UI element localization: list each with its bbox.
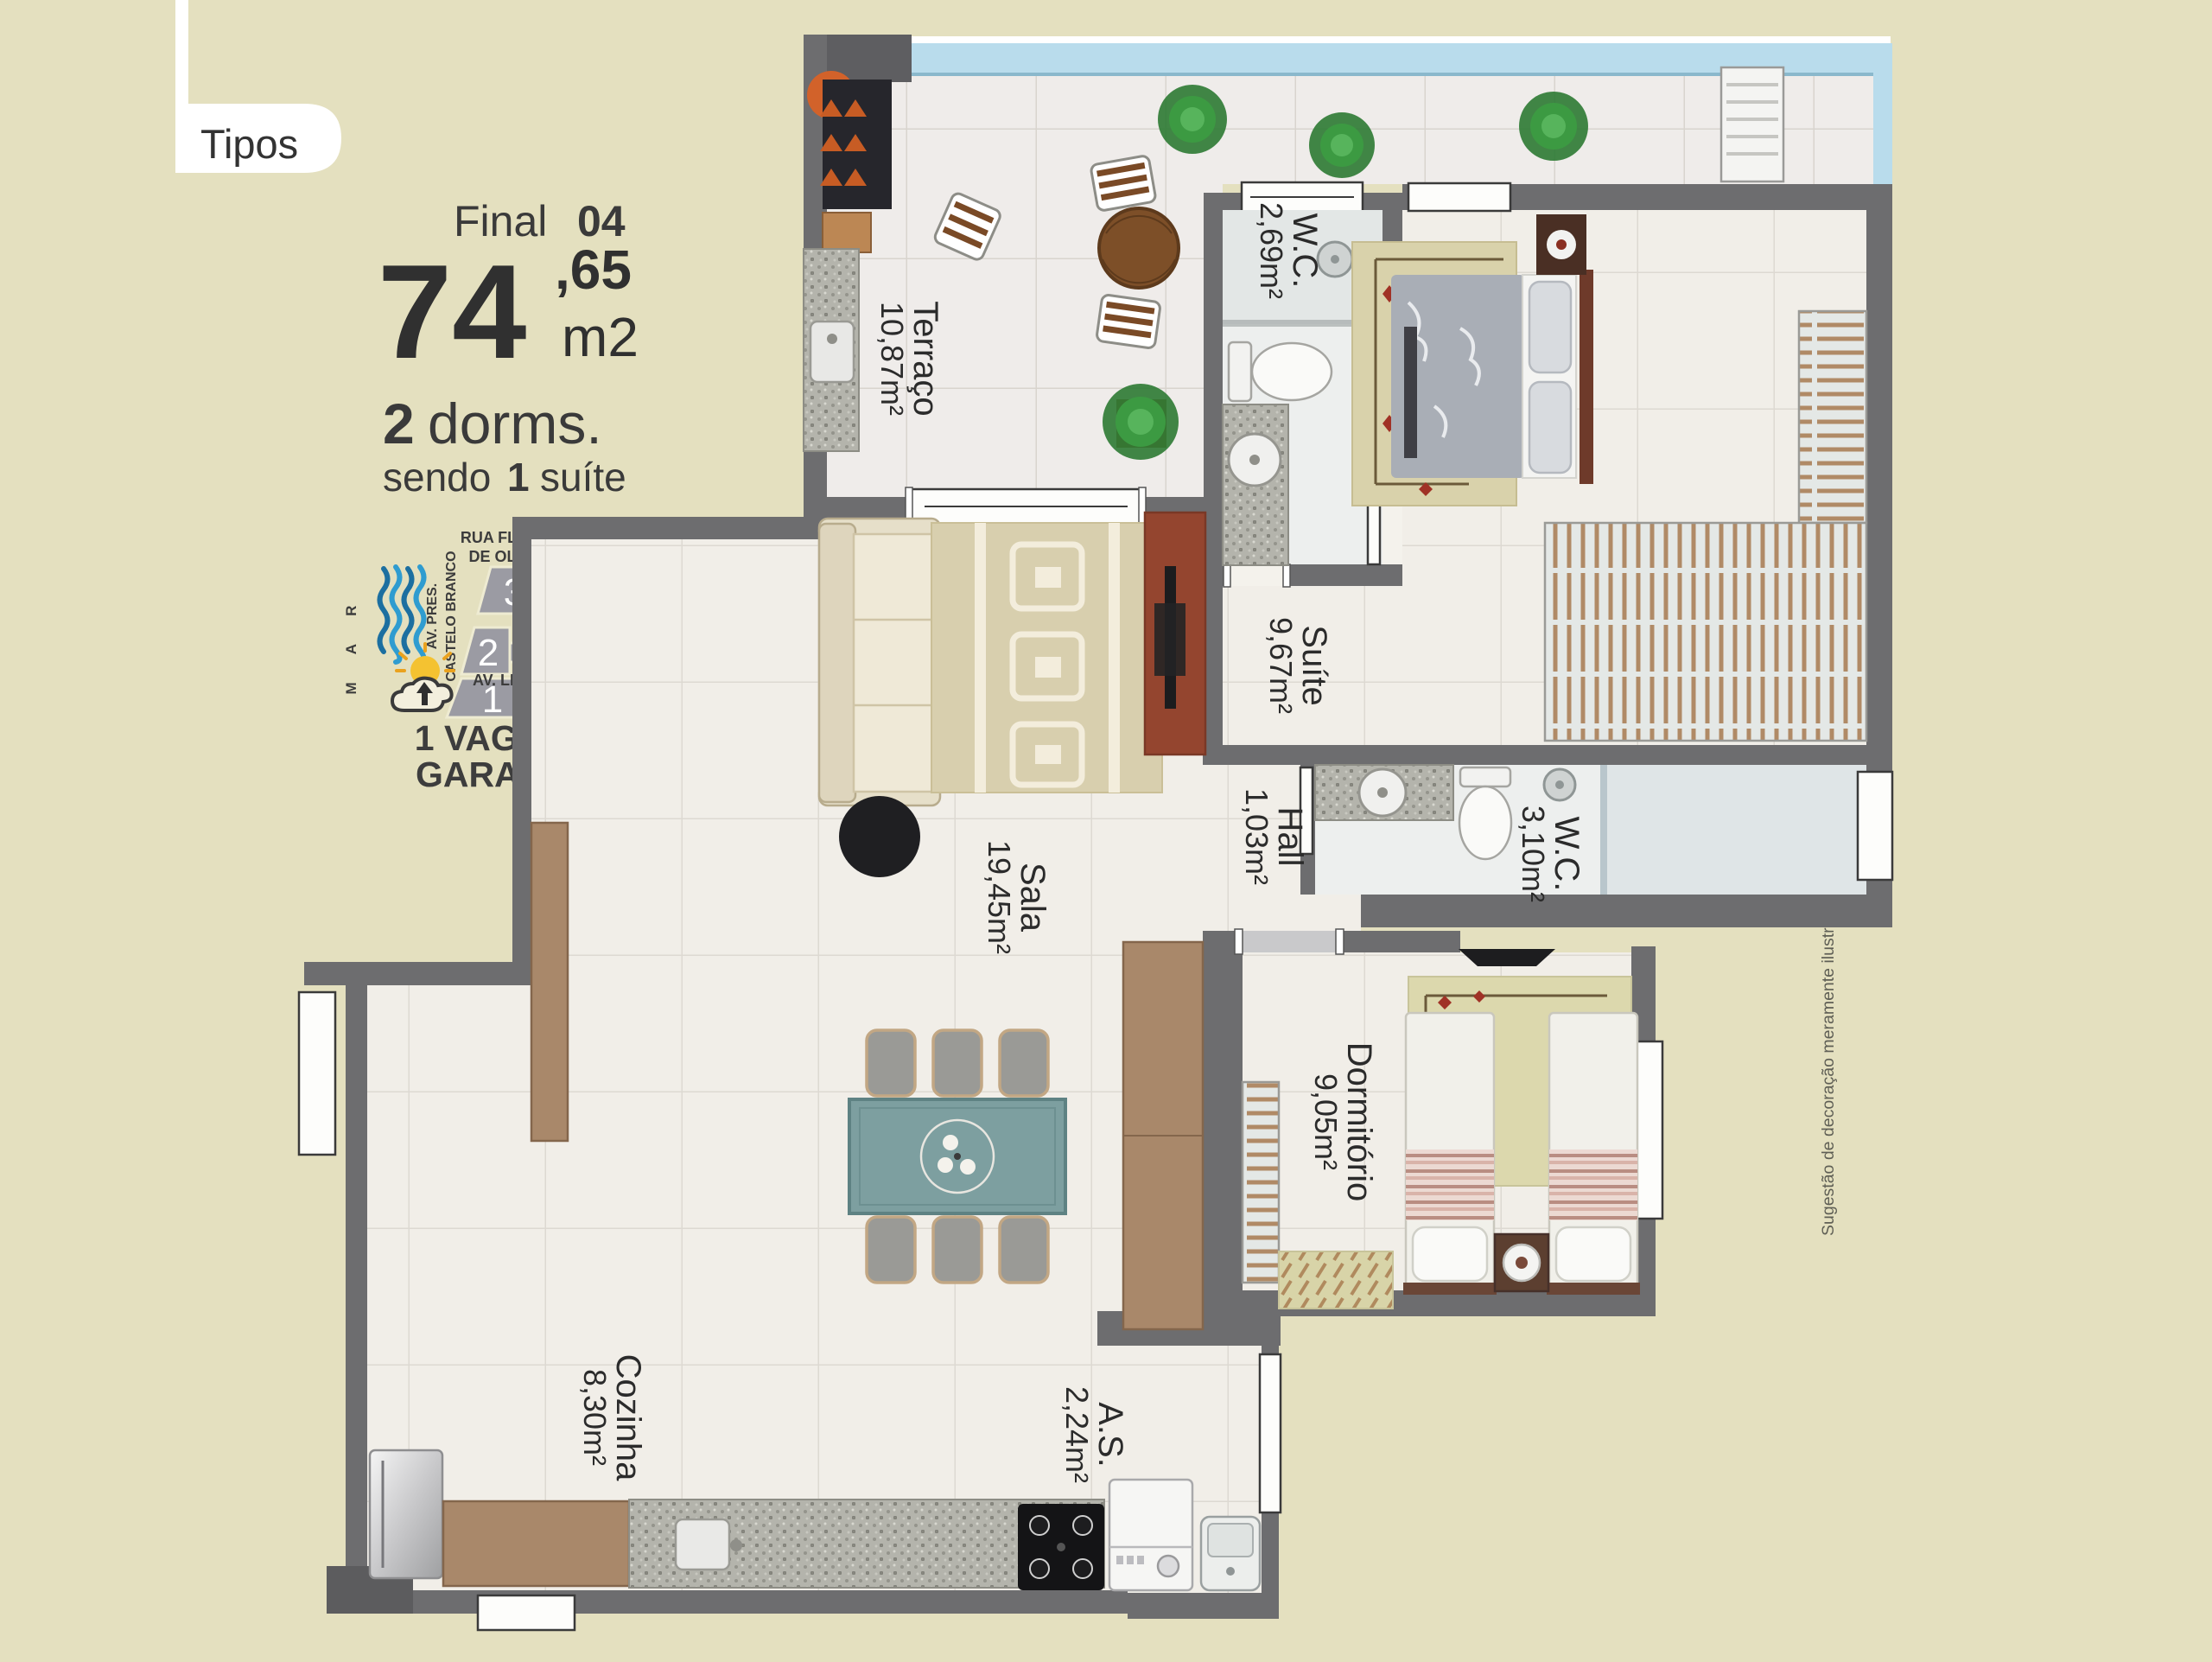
window: [478, 1595, 575, 1630]
dining-set: [849, 1030, 1065, 1283]
wall: [346, 977, 367, 1612]
svg-text:9,05m²: 9,05m²: [1308, 1073, 1344, 1170]
side-table: [823, 213, 871, 252]
ac-unit: [1721, 67, 1783, 181]
svg-text:2,24m²: 2,24m²: [1059, 1386, 1095, 1483]
laundry-tank-icon: [1201, 1517, 1260, 1590]
svg-text:A.S.: A.S.: [1091, 1402, 1129, 1468]
cooktop-icon: [1018, 1504, 1104, 1590]
wall: [1262, 1512, 1279, 1595]
svg-text:Suíte: Suíte: [1295, 625, 1333, 705]
toilet-tank: [1229, 342, 1251, 401]
door-jamb: [1336, 929, 1344, 954]
dorm-wardrobe: [1243, 1082, 1279, 1283]
sala-rug: [931, 523, 1162, 793]
tab-label: Tipos: [200, 121, 298, 167]
svg-text:8,30m²: 8,30m²: [577, 1369, 613, 1466]
kitchen-sink: [676, 1519, 729, 1570]
toilet-tank: [1460, 767, 1510, 786]
toilet-icon: [1252, 343, 1332, 400]
dining-chair: [933, 1030, 982, 1096]
twin-bed: [1403, 1013, 1497, 1295]
plant-icon: [1309, 112, 1375, 178]
wall: [512, 517, 827, 539]
label-wc-social: W.C. 3,10m²: [1516, 806, 1586, 902]
window: [299, 992, 335, 1155]
floorplan-canvas: Tipos Final 04 74 ,65 m2 2 dorms. sendo …: [0, 0, 2212, 1662]
bed-headboard: [1580, 270, 1593, 484]
svg-text:10,87m²: 10,87m²: [874, 302, 910, 416]
svg-text:Terraço: Terraço: [906, 301, 944, 416]
wall: [359, 1590, 1128, 1614]
window: [1858, 772, 1892, 880]
svg-text:Hall: Hall: [1271, 807, 1309, 867]
svg-text:19,45m²: 19,45m²: [982, 840, 1017, 954]
round-table: [1099, 208, 1179, 288]
door: [1260, 1354, 1281, 1512]
toilet-icon: [1459, 786, 1511, 859]
wall: [512, 517, 531, 977]
side-table-round: [839, 796, 920, 877]
wall: [1204, 193, 1223, 566]
wall: [1203, 952, 1218, 1333]
dining-chair: [867, 1030, 915, 1096]
label-terraco: Terraço 10,87m²: [874, 301, 944, 416]
dining-chair: [1000, 1030, 1048, 1096]
door-jamb: [1235, 929, 1243, 954]
plant-icon: [1103, 384, 1179, 460]
terrace-sink: [810, 322, 854, 382]
dining-chair: [867, 1217, 915, 1283]
sofa-icon: [819, 519, 940, 806]
twin-bed: [1547, 1013, 1640, 1295]
svg-text:1,03m²: 1,03m²: [1239, 788, 1274, 885]
unit-area: 74 ,65 m2: [378, 237, 639, 386]
pillow: [1529, 282, 1571, 373]
svg-text:W.C.: W.C.: [1286, 213, 1324, 289]
door-opening-suite: [1230, 566, 1284, 586]
fridge-icon: [370, 1450, 442, 1578]
svg-text:AV. PRES.: AV. PRES.: [425, 583, 440, 649]
svg-text:9,67m²: 9,67m²: [1263, 617, 1299, 714]
pillow: [1529, 382, 1571, 473]
svg-text:Dormitório: Dormitório: [1340, 1042, 1378, 1201]
window: [1408, 183, 1510, 211]
label-wc-suite: W.C. 2,69m²: [1254, 202, 1324, 299]
door-jamb: [1224, 564, 1230, 587]
door-jamb: [1283, 564, 1290, 587]
suite-wardrobe: [1799, 311, 1866, 523]
suite-door-leaf: [1404, 327, 1417, 458]
svg-text:3,10m²: 3,10m²: [1516, 806, 1551, 902]
svg-text:Sala: Sala: [1014, 863, 1052, 933]
plant-icon: [1158, 85, 1227, 154]
floorplan-page: Tipos Final 04 74 ,65 m2 2 dorms. sendo …: [0, 0, 2212, 1662]
tv-stand: [1145, 513, 1205, 755]
label-cozinha: Cozinha 8,30m²: [577, 1354, 647, 1482]
kitchen-counter-wood: [443, 1501, 629, 1586]
wall: [1203, 745, 1866, 765]
plant-icon: [1519, 92, 1588, 161]
svg-text:2,69m²: 2,69m²: [1254, 202, 1289, 299]
sea-label: M A R: [343, 594, 359, 695]
wall: [1262, 1346, 1279, 1354]
dining-chair: [1000, 1217, 1048, 1283]
svg-text:CASTELO BRANCO: CASTELO BRANCO: [444, 551, 459, 681]
door-opening-dormitorio: [1242, 931, 1337, 952]
svg-text:W.C.: W.C.: [1548, 817, 1586, 892]
wall: [1361, 895, 1866, 927]
suite-wardrobe: [1545, 523, 1866, 741]
dining-chair: [933, 1217, 982, 1283]
wc-social-shower-floor: [1605, 765, 1866, 895]
dorm-shoe-rug: [1279, 1251, 1393, 1309]
shower-glass: [1600, 765, 1607, 895]
wall: [1128, 1593, 1279, 1619]
nightstand-icon: [1495, 1234, 1548, 1291]
label-suite: Suíte 9,67m²: [1263, 617, 1333, 714]
sideboard-cabinet: [531, 823, 568, 1141]
svg-text:2: 2: [478, 632, 499, 674]
svg-text:Cozinha: Cozinha: [609, 1354, 647, 1482]
wall: [304, 962, 531, 985]
washing-machine-icon: [1109, 1480, 1192, 1590]
tab-stem: [175, 0, 188, 121]
